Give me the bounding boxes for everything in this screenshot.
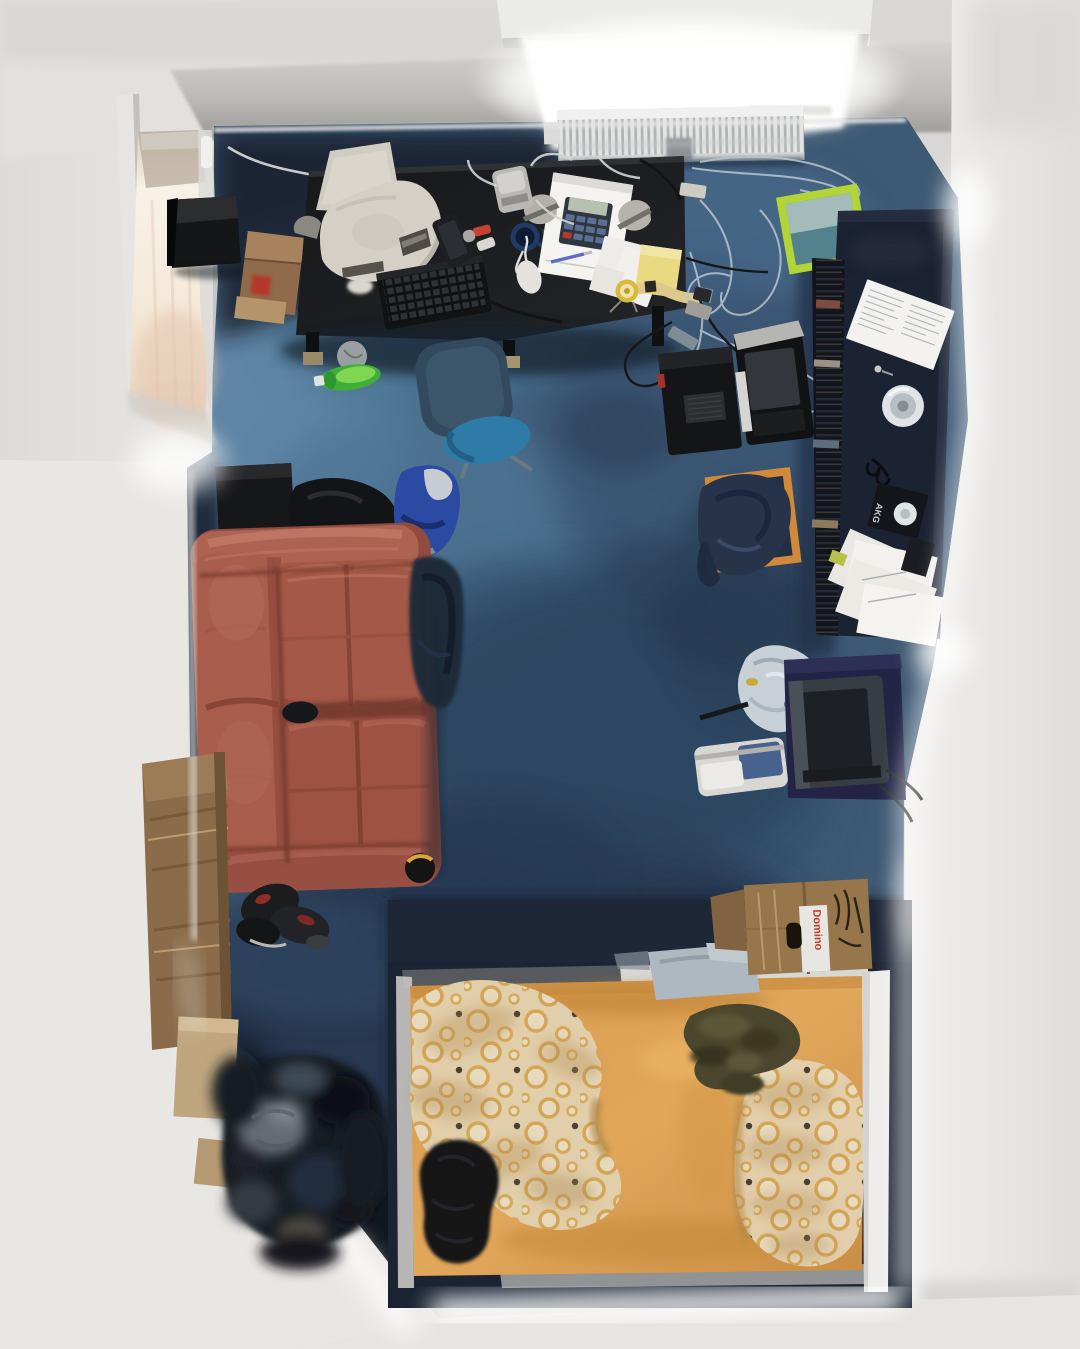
svg-text:Domino: Domino xyxy=(810,909,824,951)
